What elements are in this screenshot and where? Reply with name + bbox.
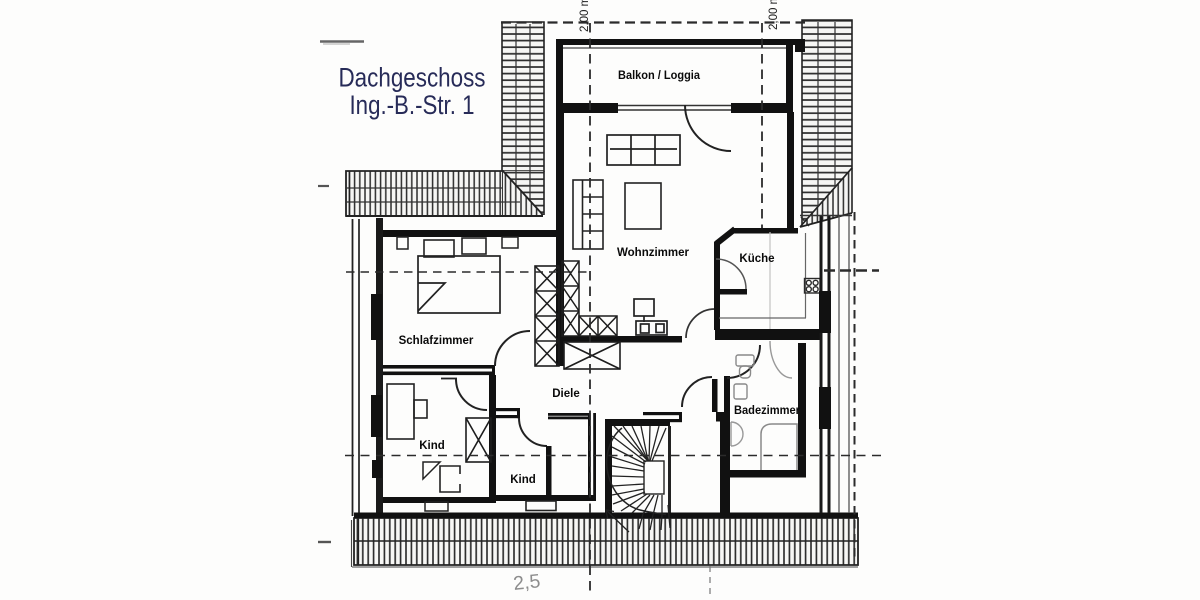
svg-text:2,00 m: 2,00 m (768, 0, 780, 30)
svg-text:2,5: 2,5 (512, 570, 541, 595)
svg-text:Schlafzimmer: Schlafzimmer (399, 335, 474, 347)
svg-text:Badezimmer: Badezimmer (734, 405, 801, 417)
svg-text:Wohnzimmer: Wohnzimmer (617, 247, 690, 259)
svg-text:Diele: Diele (552, 388, 580, 400)
svg-text:2,00 m: 2,00 m (579, 0, 591, 32)
svg-text:Balkon / Loggia: Balkon / Loggia (618, 70, 701, 82)
svg-text:Kind: Kind (510, 474, 536, 486)
svg-text:Dachgeschoss: Dachgeschoss (339, 63, 486, 93)
svg-text:Küche: Küche (739, 253, 774, 265)
svg-text:Kind: Kind (419, 440, 445, 452)
svg-text:Ing.-B.-Str. 1: Ing.-B.-Str. 1 (350, 90, 475, 120)
